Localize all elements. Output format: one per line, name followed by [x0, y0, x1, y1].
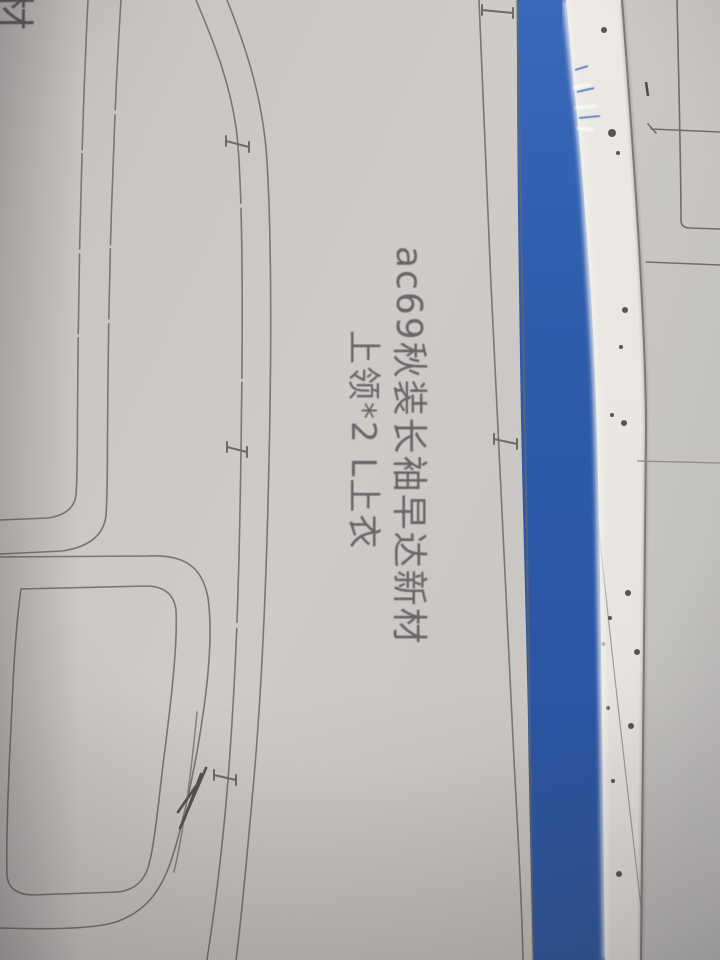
pattern-paper-photo: ac69秋装长袖早达新材 上领*2 L上衣 材: [0, 0, 720, 960]
vignette-bottom: [0, 0, 720, 960]
